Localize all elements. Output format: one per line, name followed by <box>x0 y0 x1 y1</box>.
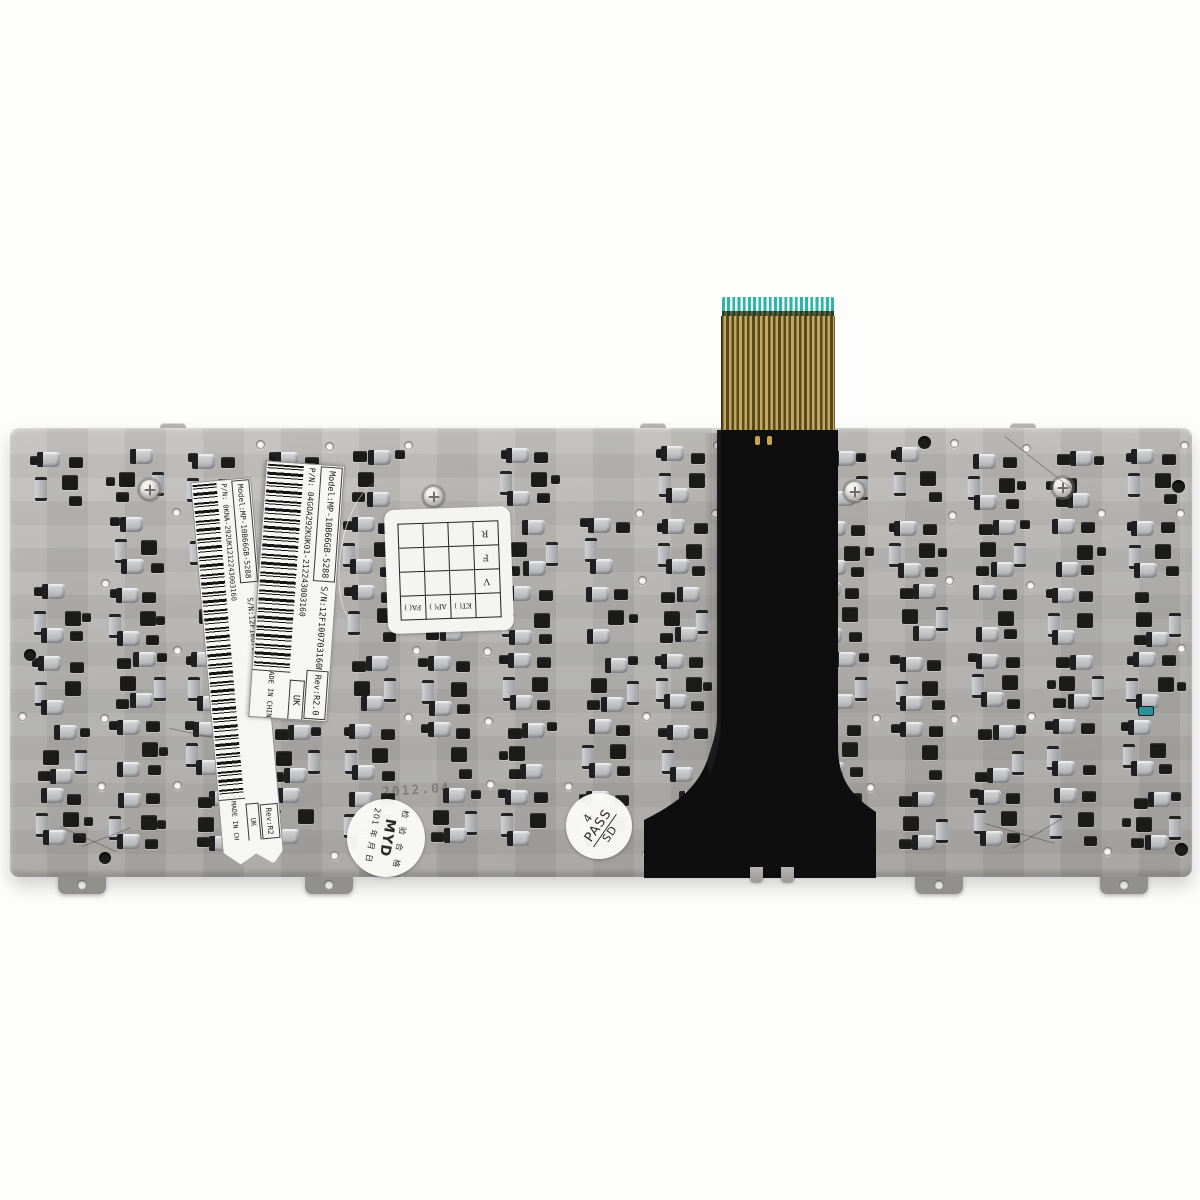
key-cutout <box>418 658 428 667</box>
key-cutout <box>1097 547 1106 556</box>
key-cutout <box>456 728 470 739</box>
key-cutout <box>117 658 131 669</box>
key-cutout <box>592 587 609 602</box>
key-cutout <box>140 611 156 626</box>
key-cutout <box>198 797 212 808</box>
key-cutout <box>69 457 83 468</box>
key-cutout <box>44 656 61 671</box>
key-cutout <box>616 725 630 736</box>
key-cutout <box>999 725 1016 740</box>
key-cutout <box>1076 655 1093 670</box>
key-cutout <box>929 770 942 780</box>
key-cutout <box>936 607 948 631</box>
key-cutout <box>906 696 923 711</box>
key-cutout <box>516 695 533 710</box>
key-cutout <box>457 704 470 714</box>
key-cutout <box>607 697 624 712</box>
key-cutout <box>141 540 157 555</box>
key-cutout <box>60 725 77 740</box>
plate-hole <box>1103 847 1112 856</box>
label-country: MADE IN CHINA <box>249 669 290 719</box>
key-cutout <box>918 792 935 807</box>
label-revision: Rev:R2 <box>260 803 281 840</box>
key-cutout <box>116 492 129 502</box>
key-cutout <box>547 722 557 731</box>
key-cutout <box>1047 680 1056 689</box>
key-cutout <box>47 628 64 643</box>
key-cutout <box>593 629 610 644</box>
key-cutout <box>587 700 600 710</box>
key-cutout <box>979 585 996 600</box>
plate-hole <box>18 712 27 721</box>
key-cutout <box>514 653 531 668</box>
qc-grid-cell <box>475 593 501 618</box>
key-cutout <box>513 491 530 506</box>
key-cutout <box>534 613 550 628</box>
plate-hole <box>948 511 957 520</box>
key-cutout <box>136 449 153 464</box>
qc-grid-cell <box>398 523 424 548</box>
key-cutout <box>982 654 999 669</box>
qc-grid-cell <box>400 571 426 596</box>
plate-hole <box>100 714 109 723</box>
key-cutout <box>282 829 299 844</box>
key-cutout <box>154 677 166 701</box>
key-cutout <box>119 472 135 487</box>
qc-grid-cell: V <box>475 569 501 594</box>
key-cutout <box>1002 675 1018 690</box>
key-cutout <box>47 788 64 803</box>
key-cutout <box>1004 629 1017 639</box>
key-cutout <box>75 750 87 774</box>
key-cutout <box>159 747 168 756</box>
plate-hole <box>173 646 182 655</box>
key-cutout <box>595 763 612 778</box>
plate-hole <box>412 646 421 655</box>
key-cutout <box>84 817 93 826</box>
key-cutout <box>1059 719 1076 734</box>
key-cutout <box>136 693 153 708</box>
key-cutout <box>1006 793 1020 804</box>
key-cutout <box>449 788 466 803</box>
plate-hole <box>173 781 182 790</box>
key-cutout <box>1136 612 1152 627</box>
key-cutout <box>511 790 528 805</box>
qc-grid-cell <box>399 547 425 572</box>
key-cutout <box>904 563 921 578</box>
key-cutout <box>922 681 938 696</box>
key-cutout <box>976 566 989 576</box>
key-cutout <box>146 635 159 645</box>
key-cutout <box>198 454 215 469</box>
key-cutout <box>929 726 943 737</box>
key-cutout <box>127 559 144 574</box>
key-cutout <box>617 766 630 776</box>
key-cutout <box>978 729 992 740</box>
key-cutout <box>198 817 214 832</box>
key-cutout <box>537 700 550 710</box>
key-cutout <box>383 632 396 642</box>
plate-hole <box>256 440 265 449</box>
key-cutout <box>980 542 996 557</box>
qc-grid-cell <box>423 523 449 548</box>
key-cutout <box>906 722 923 737</box>
product-photo: 2012.04 Model:MP-10B66GB-5288 S/N:12F100… <box>0 0 1200 1200</box>
key-cutout <box>1053 698 1066 708</box>
key-cutout <box>47 700 64 715</box>
key-cutout <box>434 722 451 737</box>
key-cutout <box>49 830 66 845</box>
key-cutout <box>1094 456 1104 465</box>
key-cutout <box>1057 454 1071 465</box>
key-cutout <box>1171 792 1181 801</box>
key-cutout <box>1056 657 1070 668</box>
key-cutout <box>451 747 467 762</box>
key-cutout <box>142 592 156 603</box>
key-cutout <box>1128 473 1140 497</box>
key-cutout <box>145 839 158 849</box>
key-cutout <box>276 751 292 766</box>
cable-exposed-traces <box>721 316 835 435</box>
key-cutout <box>431 832 444 842</box>
key-cutout <box>1016 725 1026 734</box>
mounting-hole <box>77 880 87 890</box>
key-cutout <box>922 745 938 760</box>
flex-ribbon-cable <box>640 430 880 880</box>
key-cutout <box>146 793 160 804</box>
key-cutout <box>126 517 143 532</box>
key-cutout <box>979 524 993 535</box>
key-cutout <box>539 590 553 601</box>
key-cutout <box>511 542 527 557</box>
key-cutout <box>1007 833 1020 843</box>
key-cutout <box>514 586 531 601</box>
key-cutout <box>980 495 997 510</box>
plate-hole <box>564 782 573 791</box>
key-cutout <box>1003 457 1017 468</box>
key-cutout <box>938 548 947 557</box>
key-cutout <box>308 750 320 774</box>
key-cutout <box>1134 635 1147 645</box>
key-cutout <box>151 563 164 573</box>
plate-edge-notch <box>750 867 763 882</box>
key-cutout <box>1169 613 1181 637</box>
key-cutout <box>1134 798 1148 809</box>
key-cutout <box>1136 817 1152 832</box>
key-cutout <box>122 588 139 603</box>
key-cutout <box>1155 544 1171 559</box>
key-cutout <box>1137 521 1154 536</box>
key-cutout <box>1059 676 1075 691</box>
key-cutout <box>142 742 158 757</box>
key-cutout <box>354 681 370 696</box>
key-cutout <box>156 616 165 625</box>
key-cutout <box>1152 632 1169 647</box>
key-cutout <box>903 816 919 831</box>
qc-grid-cell: KT( ) <box>450 594 476 619</box>
key-cutout <box>1081 522 1095 533</box>
label-country: MADE IN CH <box>219 798 249 843</box>
key-cutout <box>69 496 82 506</box>
mounting-hole <box>1119 880 1129 890</box>
key-cutout <box>38 771 51 781</box>
qc-grid-label: R <box>482 528 489 538</box>
key-cutout <box>1058 761 1075 776</box>
key-cutout <box>628 656 638 665</box>
key-cutout <box>1083 765 1096 775</box>
key-cutout <box>1084 836 1097 846</box>
key-cutout <box>537 657 551 668</box>
key-cutout <box>1166 566 1179 576</box>
key-cutout <box>63 812 79 827</box>
qc-grid-cell <box>449 546 475 571</box>
key-cutout <box>1079 591 1093 602</box>
key-cutout <box>1177 682 1186 691</box>
key-cutout <box>70 662 84 673</box>
key-cutout <box>551 475 560 484</box>
key-cutout <box>537 493 550 503</box>
key-cutout <box>123 720 140 735</box>
key-cutout <box>1078 812 1094 827</box>
key-cutout <box>929 492 942 502</box>
key-cutout <box>48 584 65 599</box>
key-cutout <box>546 542 558 566</box>
key-cutout <box>1003 589 1017 600</box>
key-cutout <box>1162 655 1176 666</box>
key-cutout <box>1001 811 1017 826</box>
plate-hole <box>97 782 106 791</box>
key-cutout <box>627 681 639 705</box>
inspector-stamp: 检 验 合 格 MYD 201 年 月 日 <box>347 799 425 877</box>
key-cutout <box>509 769 522 779</box>
key-cutout <box>62 475 78 490</box>
key-cutout <box>106 477 115 486</box>
qc-grid-cell: F <box>474 545 500 570</box>
key-cutout <box>1014 543 1026 567</box>
key-cutout <box>1139 652 1156 667</box>
plate-hole <box>172 508 181 517</box>
qc-grid-cell <box>450 570 476 595</box>
key-cutout <box>395 450 405 459</box>
key-cutout <box>1134 720 1151 735</box>
key-cutout <box>616 522 630 533</box>
cable-connector-tips <box>722 297 834 312</box>
key-cutout <box>70 631 83 641</box>
inspector-stamp-text: 检 验 合 格 MYD 201 年 月 日 <box>362 805 409 871</box>
key-cutout <box>920 471 936 486</box>
key-cutout <box>1122 818 1131 827</box>
pass-stamp: 4 PASS SD <box>566 793 632 859</box>
plate-hole <box>486 780 495 789</box>
key-cutout <box>1082 791 1096 802</box>
qc-grid-label: AP( ) <box>429 602 447 611</box>
key-cutout <box>900 521 917 536</box>
label-revision: Rev:R2.0 <box>303 670 328 720</box>
key-cutout <box>529 561 546 576</box>
key-cutout <box>508 728 522 739</box>
key-cutout <box>358 765 375 780</box>
plate-dark-hole <box>1172 480 1185 493</box>
key-cutout <box>899 796 913 807</box>
key-cutout <box>290 768 307 783</box>
key-cutout <box>459 769 472 779</box>
key-cutout <box>157 820 166 829</box>
key-cutout <box>936 819 948 843</box>
key-cutout <box>1058 519 1075 534</box>
key-cutout <box>1155 473 1171 488</box>
key-cutout <box>110 517 120 526</box>
key-cutout <box>534 792 548 803</box>
key-cutout <box>65 611 81 626</box>
key-cutout <box>275 729 289 740</box>
key-cutout <box>372 656 389 671</box>
key-cutout <box>610 744 626 759</box>
key-cutout <box>1081 723 1095 734</box>
key-cutout <box>1137 449 1154 464</box>
teal-latch <box>1138 706 1154 716</box>
key-cutout <box>43 452 60 467</box>
mounting-hole <box>324 880 334 890</box>
key-cutout <box>99 852 111 864</box>
key-cutout <box>899 839 912 849</box>
key-cutout <box>932 700 945 710</box>
plate-hole <box>325 442 334 451</box>
key-cutout <box>1012 751 1024 775</box>
key-cutout <box>1158 677 1174 692</box>
key-cutout <box>1154 792 1171 807</box>
key-cutout <box>141 815 157 830</box>
key-cutout <box>1017 481 1026 490</box>
key-cutout <box>123 834 140 849</box>
key-cutout <box>999 520 1016 535</box>
key-cutout <box>512 448 529 463</box>
key-cutout <box>611 658 628 673</box>
key-cutout <box>372 748 388 763</box>
key-cutout <box>1150 743 1166 758</box>
key-cutout <box>116 699 129 709</box>
key-cutout <box>1062 562 1079 577</box>
key-cutout <box>900 588 914 599</box>
qc-grid-cell <box>448 522 474 547</box>
key-cutout <box>56 769 73 784</box>
key-cutout <box>534 452 548 463</box>
qc-grid-cell: FA( ) <box>400 595 426 620</box>
plate-hole <box>1027 712 1036 721</box>
key-cutout <box>530 813 546 828</box>
cable-gold-via <box>767 436 772 445</box>
key-cutout <box>283 788 300 803</box>
key-cutout <box>526 764 543 779</box>
screw <box>140 480 159 499</box>
key-cutout <box>146 721 160 732</box>
key-cutout <box>923 524 937 535</box>
key-cutout <box>148 765 161 775</box>
key-cutout <box>435 701 452 716</box>
key-cutout <box>919 543 935 558</box>
qc-grid-sticker: RFVFA( )AP( )KT( ) <box>384 506 514 634</box>
key-cutout <box>918 835 935 850</box>
key-cutout <box>595 719 612 734</box>
key-cutout <box>294 725 311 740</box>
key-cutout <box>1159 764 1172 774</box>
key-cutout <box>614 589 628 600</box>
plate-hole <box>950 439 959 448</box>
key-cutout <box>986 831 1003 846</box>
key-cutout <box>1073 493 1090 508</box>
key-cutout <box>367 696 384 711</box>
key-cutout <box>124 793 141 808</box>
plate-hole <box>1180 441 1189 450</box>
key-cutout <box>1169 816 1181 840</box>
plate-dark-hole <box>1175 843 1188 856</box>
key-cutout <box>298 809 314 824</box>
key-cutout <box>906 657 923 672</box>
plate-hole <box>404 441 413 450</box>
qc-grid-label: FA( ) <box>404 603 421 612</box>
plate-bottom-tab <box>1100 875 1148 894</box>
plate-hole <box>945 576 954 585</box>
key-cutout <box>594 518 611 533</box>
key-cutout <box>997 562 1014 577</box>
plate-bottom-tab <box>58 875 106 894</box>
plate-hole <box>484 717 493 726</box>
key-cutout <box>434 656 451 671</box>
plate-edge-notch <box>781 867 794 882</box>
key-cutout <box>532 677 548 692</box>
cable-gold-via <box>755 436 760 445</box>
key-cutout <box>80 728 90 737</box>
key-cutout <box>902 447 919 462</box>
key-cutout <box>596 559 613 574</box>
key-cutout <box>82 613 91 622</box>
plate-hole <box>483 647 492 656</box>
plate-hole <box>1177 644 1186 653</box>
plate-hole <box>1026 581 1035 590</box>
key-cutout <box>1020 520 1030 529</box>
key-cutout <box>1058 588 1075 603</box>
key-cutout <box>451 682 467 697</box>
key-cutout <box>1081 565 1094 575</box>
key-cutout <box>1151 835 1168 850</box>
key-cutout <box>1140 563 1157 578</box>
key-cutout <box>998 611 1014 626</box>
key-cutout <box>927 660 941 671</box>
key-cutout <box>509 746 525 761</box>
key-cutout <box>43 750 59 765</box>
plate-hole <box>1097 509 1106 518</box>
key-cutout <box>539 634 552 644</box>
key-cutout <box>311 727 321 736</box>
key-cutout <box>381 729 395 740</box>
key-cutout <box>471 790 481 799</box>
plate-dark-hole <box>918 436 931 449</box>
key-cutout <box>352 661 366 672</box>
key-cutout <box>1161 522 1175 533</box>
key-cutout <box>1077 613 1093 628</box>
key-cutout <box>1074 694 1091 709</box>
key-cutout <box>591 678 607 693</box>
key-cutout <box>1077 545 1093 560</box>
qc-grid-label: KT( ) <box>454 601 472 610</box>
key-cutout <box>221 457 235 468</box>
key-cutout <box>1164 494 1177 504</box>
qc-grid-label: V <box>483 576 490 586</box>
key-cutout <box>890 655 900 664</box>
key-cutout <box>1076 451 1093 466</box>
key-cutout <box>528 520 545 535</box>
key-cutout <box>982 627 999 642</box>
key-cutout <box>67 794 81 805</box>
